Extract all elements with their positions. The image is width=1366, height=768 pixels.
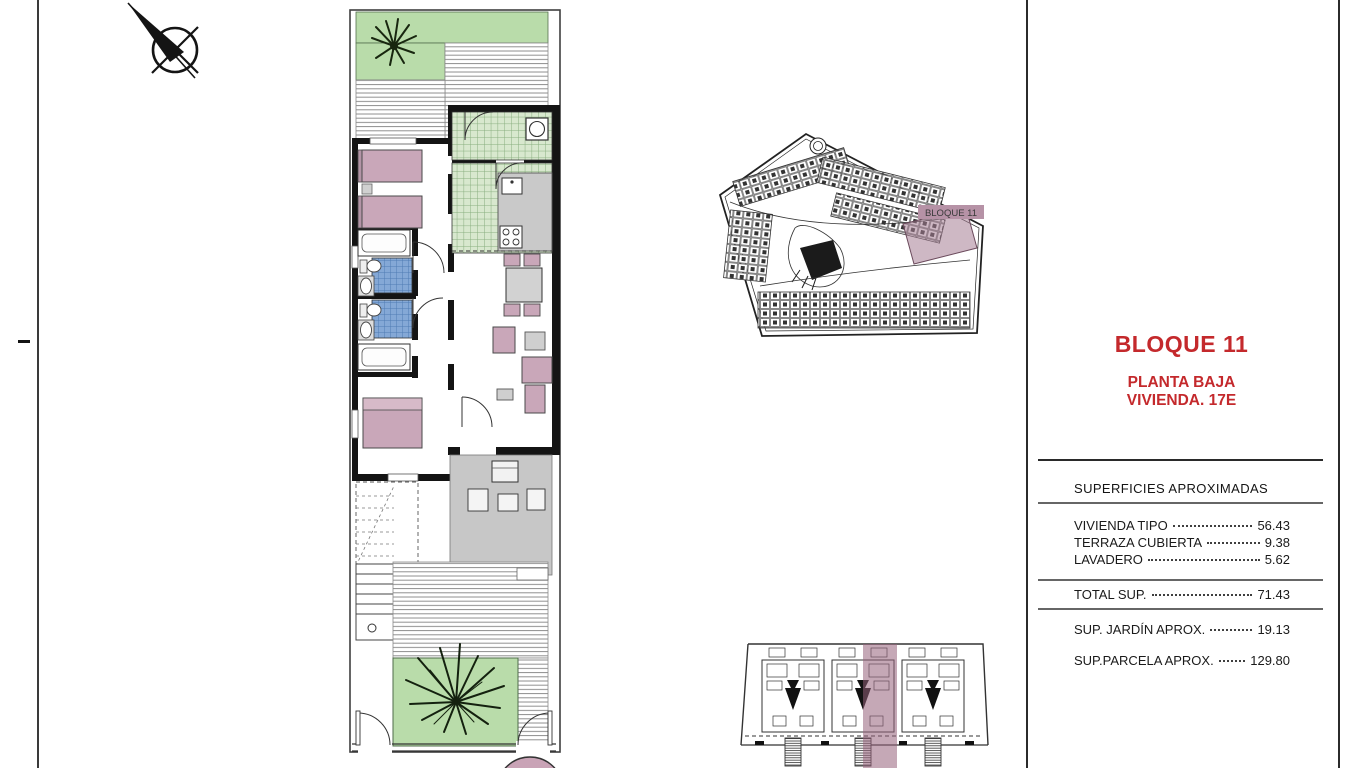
north-arrow-icon (120, 0, 230, 95)
dot-leader (1210, 629, 1252, 631)
dot-leader (1173, 525, 1253, 527)
master-bedroom (363, 398, 422, 448)
sink-icon (502, 178, 522, 194)
sheet-frame-line-left (37, 0, 39, 768)
page-subtitle-floor: PLANTA BAJA (1040, 374, 1323, 392)
row-label: LAVADERO (1074, 552, 1143, 568)
row-value: 56.43 (1257, 518, 1290, 534)
page-title: BLOQUE 11 (1040, 331, 1323, 358)
row-value: 19.13 (1257, 622, 1290, 638)
table-row: SUP. JARDÍN APROX. 19.13 (1038, 622, 1323, 638)
surfaces-table-header: SUPERFICIES APROXIMADAS (1074, 481, 1323, 496)
table-divider (1038, 608, 1323, 610)
table-divider (1038, 502, 1323, 504)
street-tree-icon (497, 757, 563, 768)
table-row: VIVIENDA TIPO 56.43 (1038, 518, 1323, 534)
table-row: LAVADERO 5.62 (1038, 552, 1323, 568)
table-row: SUP.PARCELA APROX. 129.80 (1038, 653, 1323, 669)
laundry (452, 112, 552, 160)
row-label: TERRAZA CUBIERTA (1074, 535, 1202, 551)
bathroom-1 (358, 230, 412, 296)
margin-tick (18, 340, 30, 343)
sheet-frame-line-right (1338, 0, 1340, 768)
bathroom-2 (358, 300, 412, 370)
floor-plan-drawing (348, 8, 564, 768)
block-label: BLOQUE 11 (925, 208, 977, 219)
highlighted-unit-strip (863, 644, 897, 768)
dot-leader (1219, 660, 1246, 662)
table-divider (1038, 579, 1323, 581)
dot-leader (1148, 559, 1260, 561)
row-value: 71.43 (1257, 587, 1290, 603)
row-label: VIVIENDA TIPO (1074, 518, 1168, 534)
row-value: 9.38 (1265, 535, 1290, 551)
table-row: TERRAZA CUBIERTA 9.38 (1038, 535, 1323, 551)
row-label: SUP.PARCELA APROX. (1074, 653, 1214, 669)
front-garden (393, 562, 548, 746)
stove-icon (500, 226, 522, 248)
row-label: SUP. JARDÍN APROX. (1074, 622, 1205, 638)
row-value: 5.62 (1265, 552, 1290, 568)
dot-leader (1207, 542, 1260, 544)
block-key-plan-drawing (715, 630, 1005, 768)
covered-terrace (450, 455, 552, 575)
panel-divider-line (1026, 0, 1028, 768)
row-value: 129.80 (1250, 653, 1290, 669)
table-row-total: TOTAL SUP. 71.43 (1038, 587, 1323, 603)
title-block: BLOQUE 11 PLANTA BAJA VIVIENDA. 17E (1040, 331, 1323, 410)
surfaces-table: SUPERFICIES APROXIMADAS VIVIENDA TIPO 56… (1038, 459, 1323, 669)
kitchen (452, 163, 552, 253)
site-plan-drawing: BLOQUE 11 (700, 120, 1000, 350)
row-label: TOTAL SUP. (1074, 587, 1147, 603)
dot-leader (1152, 594, 1253, 596)
page-subtitle-unit: VIVIENDA. 17E (1040, 392, 1323, 410)
